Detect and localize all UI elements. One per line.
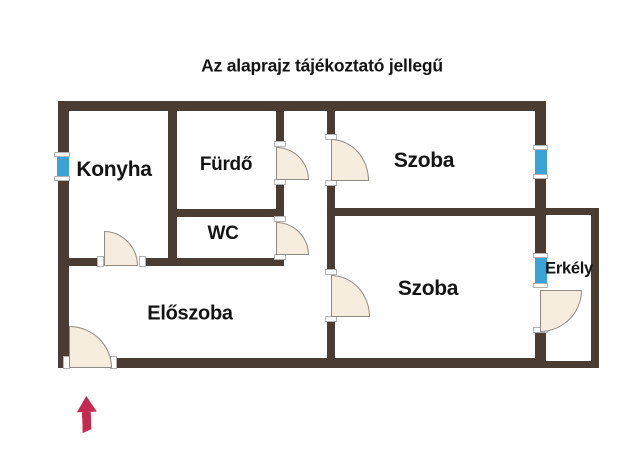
konyha-door-arc-icon [104, 231, 138, 266]
door-jamb-tick [97, 256, 104, 267]
wall-furdo-wc [168, 209, 276, 217]
balcony-door-arc-icon [540, 290, 582, 332]
furdo-door-arc-icon [276, 147, 309, 180]
room-label-wc: WC [207, 223, 238, 245]
szoba-also-door-arc-icon [331, 275, 370, 317]
wall-outer-left [58, 101, 69, 368]
wall-szoba-divider [335, 208, 546, 216]
room-label-konyha: Konyha [76, 158, 151, 182]
plan-title: Az alaprajz tájékoztató jellegű [201, 56, 443, 77]
window-jamb-tick [533, 283, 548, 288]
wall-outer-top [58, 101, 546, 111]
szoba-felso-door-arc-icon [331, 139, 369, 181]
entrance-arrow-icon [76, 396, 97, 437]
wall-balcony-right [591, 208, 599, 368]
arrow-shaft [82, 412, 92, 433]
wall-konyha-furdo [168, 111, 177, 266]
room-label-eloszoba: Előszoba [147, 303, 232, 326]
window-konyha-icon [57, 157, 69, 176]
wc-door-arc-icon [276, 222, 309, 255]
window-szoba-felso-icon [535, 150, 547, 174]
wall-balcony-bottom [546, 361, 599, 368]
entrance-door-arc-icon [69, 326, 112, 368]
room-label-szoba-felso: Szoba [394, 149, 454, 173]
arrow-head [76, 396, 97, 413]
window-jamb-tick [533, 174, 548, 179]
floor-plan: Az alaprajz tájékoztató jellegű [0, 0, 640, 469]
room-label-szoba-also: Szoba [398, 277, 458, 301]
door-jamb-tick [139, 256, 146, 267]
wall-outer-bottom [58, 358, 546, 368]
window-jamb-tick [54, 176, 70, 181]
room-label-erkely: Erkély [545, 260, 593, 279]
room-label-furdo: Fürdő [200, 154, 252, 176]
